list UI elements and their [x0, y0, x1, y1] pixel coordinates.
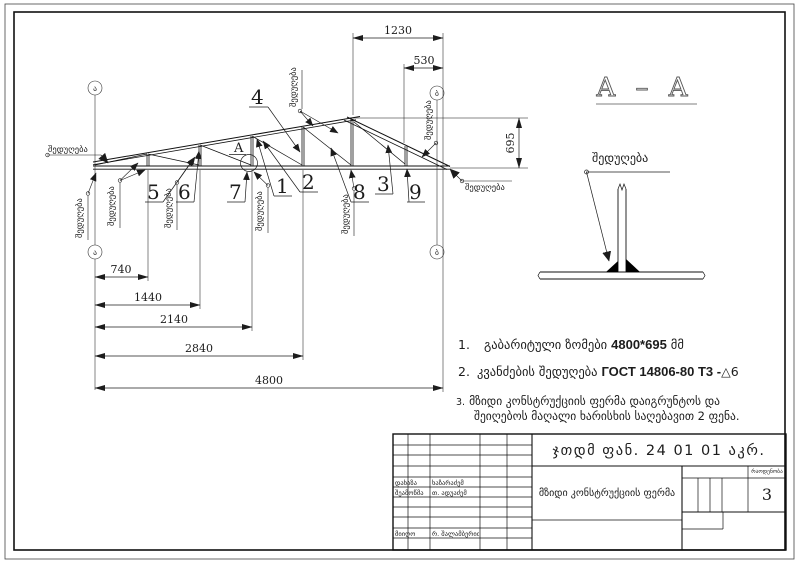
axis-letter-a-bottom: ა — [93, 248, 97, 257]
weld-label-2: შედუღება — [74, 198, 85, 238]
note-3-text2: შეიღებოს მაღალი ხარისხის საღებავით 2 ფენ… — [474, 409, 739, 423]
section-a-a: A – A შედუღება — [538, 73, 705, 279]
weld-label-4: შედუღება — [163, 188, 174, 228]
weld-label-8: შედუღება — [423, 100, 434, 140]
titleblock-title: მზიდი კონსტრუქციის ფერმა — [532, 468, 682, 518]
part-7: 7 — [229, 180, 242, 204]
note-2-bold: ГОСТ 14806-80 Т3 - — [601, 364, 721, 379]
titleblock-quantity-value: 3 — [748, 478, 786, 510]
axis-letter-b-top: ბ — [435, 89, 439, 98]
dim-695: 695 — [504, 133, 517, 154]
column-axes — [88, 81, 444, 390]
dim-1230: 1230 — [384, 24, 412, 37]
part-6: 6 — [178, 180, 191, 204]
titleblock-row2-name: თ. ადუაძემ — [432, 488, 479, 498]
dim-1440: 1440 — [134, 291, 162, 304]
note-1-text: გაბარიტული ზომები — [484, 337, 607, 352]
weld-label-7: შედუღება — [288, 67, 299, 107]
part-3: 3 — [377, 172, 390, 196]
dim-2140: 2140 — [160, 313, 188, 326]
note-2-number: 2. — [458, 364, 470, 379]
weld-label-9: შედუღება — [465, 182, 505, 193]
weld-fillet-left — [606, 261, 618, 272]
part-4: 4 — [251, 85, 264, 109]
axis-letter-a-top: ა — [93, 84, 97, 93]
weld-label-1: შედუღება — [48, 144, 88, 155]
dim-2840: 2840 — [185, 342, 213, 355]
note-1: 1.გაბარიტული ზომები 4800*695 მმ — [458, 337, 684, 352]
weld-label-3: შედუღება — [106, 186, 117, 226]
note-3-line1: 3.მზიდი კონსტრუქციის ფერმა დაიგრუნტოს და — [456, 394, 720, 408]
titleblock-row1-name: ხაზარაძემ — [432, 478, 479, 488]
titleblock-row1-label: დახაზა — [395, 478, 428, 488]
note-1-number: 1. — [458, 337, 470, 352]
titleblock-quantity-label: რაოდენობა — [748, 466, 786, 478]
note-1-bold: 4800*695 — [611, 337, 667, 352]
note-2-text: კვანძების შედუღება — [477, 364, 598, 379]
dim-530: 530 — [414, 54, 435, 67]
part-2: 2 — [302, 170, 315, 194]
part-1: 1 — [276, 174, 289, 198]
section-title: A – A — [595, 73, 693, 103]
dim-4800: 4800 — [255, 374, 283, 387]
truss-chords — [93, 117, 528, 170]
titleblock-row2-label: შეამოწმა — [395, 488, 428, 498]
detail-a-label: A — [233, 141, 244, 156]
note-3-number: 3. — [456, 397, 465, 408]
note-3-text1: მზიდი კონსტრუქციის ფერმა დაიგრუნტოს და — [469, 394, 720, 408]
part-8: 8 — [353, 180, 366, 204]
part-9: 9 — [409, 180, 422, 204]
axis-letter-b-bottom: ბ — [435, 248, 439, 257]
note-2: 2.კვანძების შედუღება ГОСТ 14806-80 Т3 -△… — [458, 364, 739, 379]
note-3-line2: შეიღებოს მაღალი ხარისხის საღებავით 2 ფენ… — [474, 409, 739, 423]
drawing-sheet: ა ა ბ ბ 1230 530 695 740 1440 2140 2840 … — [0, 0, 800, 565]
titleblock-row3-label: მიიღო — [395, 529, 428, 539]
weld-label-6: შედუღება — [340, 194, 351, 234]
note-2-weld-symbol: △6 — [721, 364, 739, 379]
weld-fillet-right — [626, 259, 640, 272]
section-weld-label: შედუღება — [592, 151, 648, 165]
dimension-lines — [95, 38, 519, 388]
weld-label-5: შედუღება — [254, 191, 265, 231]
part-5: 5 — [147, 180, 160, 204]
titleblock-doc-number: ჯთდმ ფან. 24 01 01 აკრ. — [532, 436, 786, 466]
titleblock-row3-name: რ. შალამბერიძემ — [432, 529, 479, 539]
dim-740: 740 — [111, 263, 132, 276]
truss-webs — [95, 119, 407, 166]
note-1-unit: მმ — [671, 337, 684, 352]
